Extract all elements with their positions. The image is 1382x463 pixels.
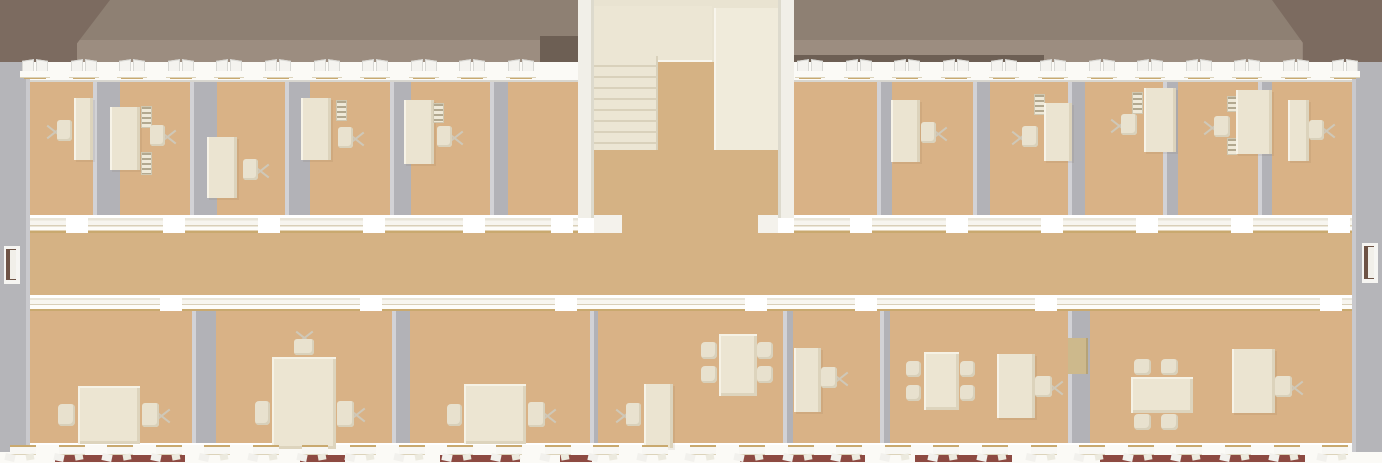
desk [1232, 349, 1275, 413]
window-panel [1289, 453, 1298, 460]
corridor-wall-stub [758, 215, 778, 233]
office-chair [337, 401, 354, 427]
stairwell-side-wall [778, 0, 794, 218]
window-trim [364, 77, 386, 79]
office-chair [1035, 376, 1052, 397]
window-trim [218, 77, 240, 79]
window-trim [1188, 77, 1210, 79]
meeting-table [719, 334, 757, 396]
office-chair [437, 126, 452, 147]
window-trim [799, 77, 821, 79]
window-sill [214, 71, 244, 77]
corridor-floor [30, 233, 1352, 295]
window-trim [1091, 77, 1113, 79]
window-sill [1232, 71, 1262, 77]
corridor-wall-segment [185, 215, 258, 233]
window-sill [1184, 71, 1214, 77]
desk [301, 98, 331, 160]
meeting-table [1131, 377, 1193, 413]
corridor-wall-segment [1158, 215, 1231, 233]
corridor-wall-segment [485, 215, 551, 233]
partition-wall [590, 311, 598, 443]
office-chair [528, 402, 545, 427]
corridor-wall-segment [280, 215, 363, 233]
desk [207, 137, 237, 198]
partition-wall [783, 311, 793, 443]
office-chair [57, 120, 72, 141]
window-panel [560, 453, 569, 460]
stairwell-floor [594, 150, 778, 215]
window-panel [317, 453, 326, 460]
side-chair [757, 342, 773, 359]
corridor-wall-segment [872, 215, 946, 233]
floorplan-render [0, 0, 1382, 463]
corridor-wall-segment [385, 215, 463, 233]
desk [997, 354, 1035, 418]
meeting-table [464, 384, 526, 444]
side-chair [906, 361, 921, 377]
partition-wall [392, 311, 410, 443]
window-trim [170, 77, 192, 79]
corridor-wall-segment [30, 215, 66, 233]
desk [1288, 100, 1309, 161]
window-sill [69, 71, 99, 77]
window-sill [892, 71, 922, 77]
meeting-table [272, 357, 336, 449]
window-trim [73, 77, 95, 79]
window-sill [117, 71, 147, 77]
stair-landing [594, 6, 712, 62]
window-trim [267, 77, 289, 79]
office-chair [243, 159, 258, 180]
corridor-wall-segment [877, 295, 1035, 311]
partition-wall [192, 311, 216, 443]
window-trim [1236, 77, 1258, 79]
window-sill [941, 71, 971, 77]
window-panel [803, 453, 812, 460]
partition-wall [877, 82, 892, 215]
office-chair [821, 367, 837, 388]
side-chair [255, 401, 270, 425]
bookshelf [141, 152, 152, 175]
meeting-table [924, 352, 959, 410]
window-sill [844, 71, 874, 77]
office-chair [1022, 126, 1038, 147]
window-sill [263, 71, 293, 77]
side-chair [960, 385, 975, 401]
window-sill [360, 71, 390, 77]
corridor-wall-segment [1063, 215, 1136, 233]
window-sill [457, 71, 487, 77]
side-chair [447, 404, 462, 426]
bookshelf [433, 103, 444, 123]
window-sill [1087, 71, 1117, 77]
office-chair [150, 125, 165, 146]
stairwell-floor [658, 62, 714, 152]
partition-wall [973, 82, 990, 215]
bookshelf [1132, 92, 1143, 114]
window-trim [1139, 77, 1161, 79]
office-chair [1309, 120, 1324, 140]
desk [1144, 88, 1176, 152]
side-chair [1161, 359, 1178, 375]
window-panel [74, 453, 83, 460]
partition-wall [1068, 311, 1090, 443]
office-chair [626, 403, 641, 426]
door-leaf [1368, 247, 1374, 278]
window-trim [461, 77, 483, 79]
window-trim [993, 77, 1015, 79]
desk [891, 100, 920, 162]
meeting-table [78, 386, 140, 444]
office-chair [338, 127, 353, 148]
stairwell-upper-flight-wall [714, 8, 778, 150]
corridor-wall-segment [968, 215, 1041, 233]
corridor-wall-segment [30, 295, 160, 311]
roof-eave-shadow [540, 36, 578, 62]
desk [1044, 103, 1072, 161]
door-panel [1068, 338, 1088, 374]
corridor-wall-segment [767, 295, 855, 311]
side-chair [1134, 359, 1151, 375]
window-trim [24, 77, 46, 79]
office-chair [294, 339, 314, 355]
side-chair [1134, 414, 1151, 430]
side-chair [58, 404, 75, 426]
corridor-wall-stub [594, 215, 622, 233]
corridor-wall-segment [182, 295, 360, 311]
corridor-floor [622, 215, 758, 233]
office-chair [1275, 376, 1292, 397]
window-sill [989, 71, 1019, 77]
side-chair [906, 385, 921, 401]
desk [110, 107, 140, 170]
bookshelf [336, 100, 347, 121]
window-sill [1281, 71, 1311, 77]
window-trim [121, 77, 143, 79]
staircase [594, 56, 658, 152]
desk [1236, 90, 1272, 154]
window-trim [896, 77, 918, 79]
window-trim [945, 77, 967, 79]
corridor-wall-segment [1342, 295, 1352, 311]
stairwell-side-wall [578, 0, 594, 218]
window-trim [1334, 77, 1356, 79]
desk [794, 348, 821, 412]
corridor-wall-segment [577, 295, 745, 311]
corridor-wall-segment [1253, 215, 1328, 233]
side-chair [960, 361, 975, 377]
window-sill [20, 71, 50, 77]
side-chair [701, 342, 717, 359]
window-panel [1046, 453, 1055, 460]
side-chair [757, 366, 773, 383]
corridor-wall-segment [794, 215, 850, 233]
window-sill [312, 71, 342, 77]
window-trim [1285, 77, 1307, 79]
window-sill [409, 71, 439, 77]
office-chair [1214, 116, 1230, 137]
partition-wall [880, 311, 890, 443]
side-chair [1161, 414, 1178, 430]
partition-wall [490, 82, 508, 215]
window-sill [506, 71, 536, 77]
corridor-wall-segment [88, 215, 163, 233]
side-chair [701, 366, 717, 383]
window-trim [510, 77, 532, 79]
corridor-wall-segment [1057, 295, 1320, 311]
window-trim [1042, 77, 1064, 79]
window-sill [166, 71, 196, 77]
window-sill [1038, 71, 1068, 77]
window-trim [848, 77, 870, 79]
window-trim [316, 77, 338, 79]
door-leaf [10, 250, 16, 279]
office-chair [1121, 114, 1137, 135]
office-chair [142, 403, 159, 427]
office-chair [921, 122, 936, 143]
desk [644, 384, 673, 448]
desk [74, 98, 93, 160]
window-sill [1135, 71, 1165, 77]
window-sill [795, 71, 825, 77]
window-trim [413, 77, 435, 79]
corridor-wall-segment [382, 295, 555, 311]
window-sill [1330, 71, 1360, 77]
desk [404, 100, 434, 164]
